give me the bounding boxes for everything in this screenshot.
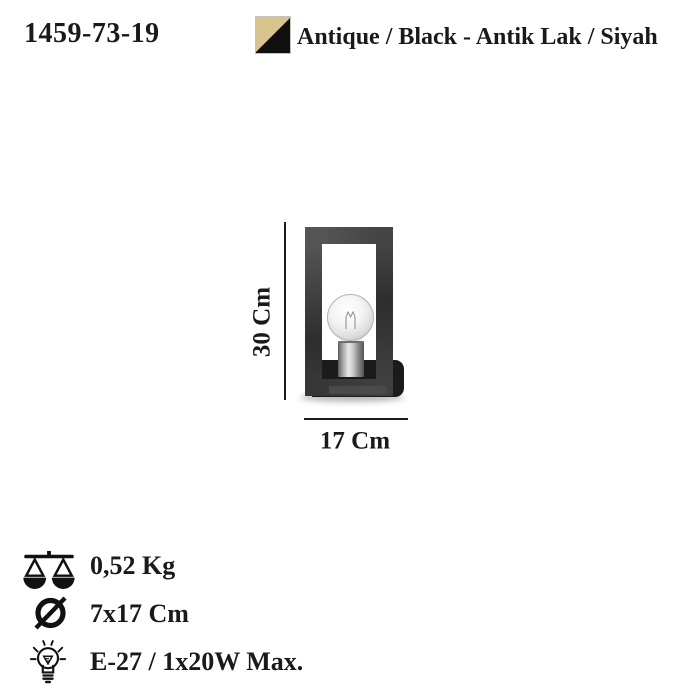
bulb-filament xyxy=(328,295,373,340)
bulb-socket xyxy=(338,341,364,377)
scale-icon xyxy=(22,551,76,594)
height-dimension-line xyxy=(284,222,286,400)
size-value: 7x17 Cm xyxy=(90,600,189,629)
product-spec-sheet: 1459-73-19 Antique / Black - Antik Lak /… xyxy=(0,0,700,700)
light-bulb xyxy=(327,294,374,341)
finish-label: Antique / Black - Antik Lak / Siyah xyxy=(297,24,658,50)
lamp-mount-recess xyxy=(329,386,387,394)
width-dimension-label: 17 Cm xyxy=(320,427,390,455)
height-dimension-label: 30 Cm xyxy=(248,287,276,357)
socket-wattage-value: E-27 / 1x20W Max. xyxy=(90,648,303,677)
bulb-icon xyxy=(29,638,67,690)
diameter-icon xyxy=(32,594,69,636)
product-code: 1459-73-19 xyxy=(24,19,160,50)
finish-swatch-icon xyxy=(256,17,290,53)
width-dimension-line xyxy=(304,418,408,420)
weight-value: 0,52 Kg xyxy=(90,552,175,581)
